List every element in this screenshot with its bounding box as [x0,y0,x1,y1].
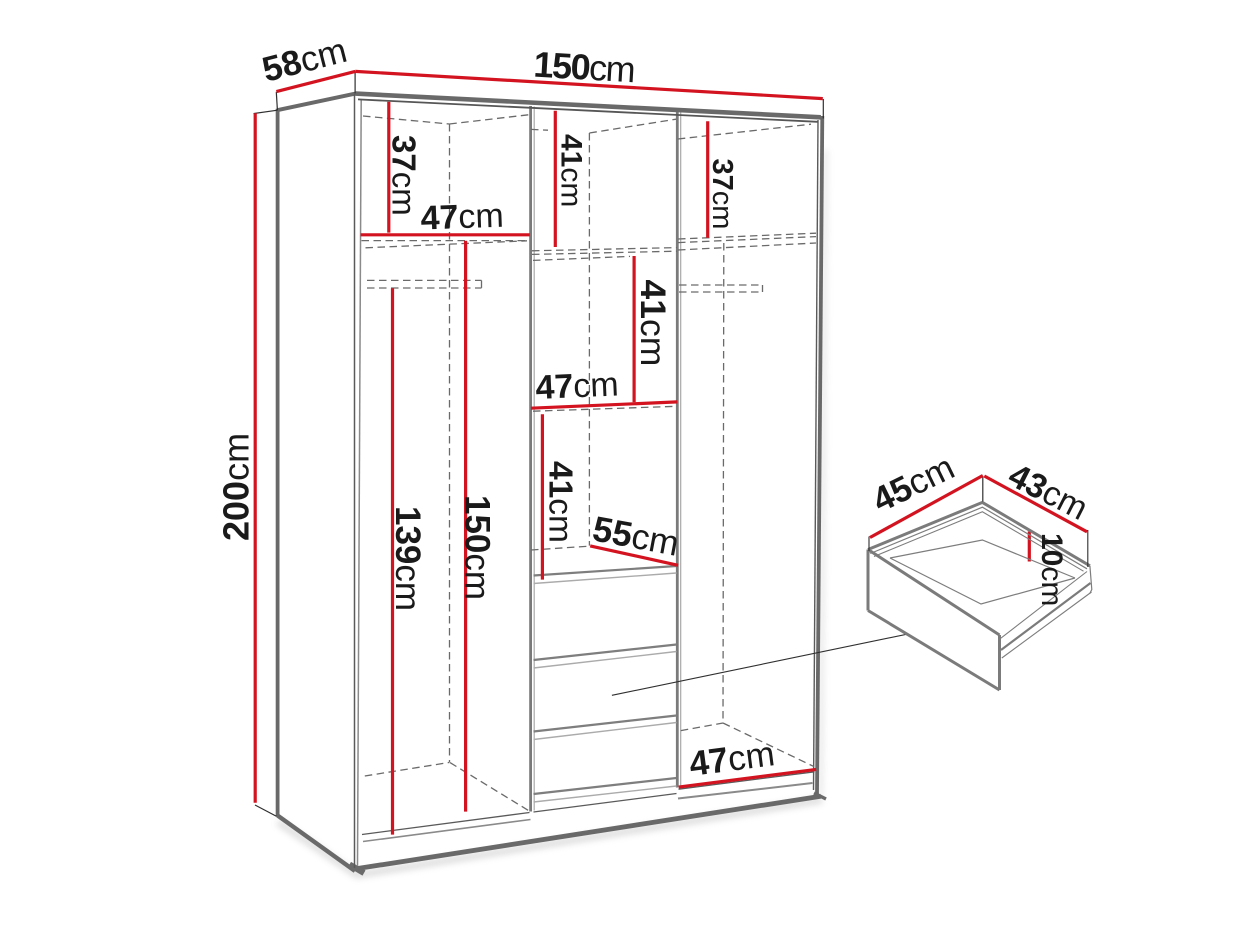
svg-text:37cm: 37cm [706,159,738,230]
svg-text:139cm: 139cm [388,506,427,611]
svg-text:37cm: 37cm [386,135,423,216]
svg-text:150cm: 150cm [533,44,636,91]
svg-text:150cm: 150cm [458,495,497,600]
svg-text:41cm: 41cm [633,280,673,367]
svg-text:10cm: 10cm [1035,533,1068,606]
svg-text:47cm: 47cm [420,197,504,238]
svg-text:41cm: 41cm [542,461,579,543]
svg-text:47cm: 47cm [535,365,620,407]
svg-text:200cm: 200cm [216,433,257,541]
svg-text:41cm: 41cm [555,134,588,207]
